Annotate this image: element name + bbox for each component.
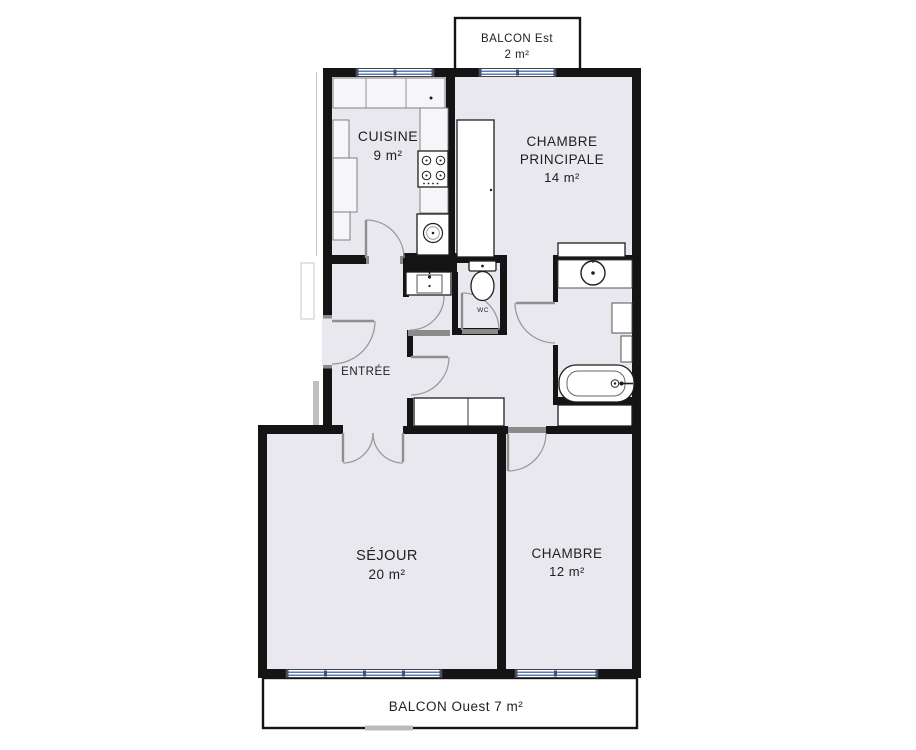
wc-label: WC [477, 307, 489, 314]
toilet-icon [469, 261, 496, 301]
entrance-opening [322, 315, 333, 369]
kitchen-area: 9 m² [374, 148, 403, 163]
exterior-guide-lines [301, 72, 319, 428]
master-bedroom-label-line2: PRINCIPALE [520, 152, 604, 167]
bedroom-window [515, 670, 598, 678]
floor-plan-page: BALCON Est 2 m² CUISINE 9 m² CHAMBRE PRI… [0, 0, 916, 750]
balcony-west-label: BALCON Ouest 7 m² [389, 699, 524, 714]
master-bedroom-window [479, 69, 556, 77]
floor-plan-drawing: BALCON Est 2 m² CUISINE 9 m² CHAMBRE PRI… [0, 0, 916, 750]
balcony-east-area: 2 m² [505, 49, 530, 61]
kitchen-label: CUISINE [358, 128, 418, 144]
hall-closet [414, 398, 504, 426]
living-room-label: SÉJOUR [356, 547, 418, 564]
bedroom-closet [558, 405, 632, 426]
kitchen-sink-icon [417, 214, 449, 255]
master-bedroom-label-line1: CHAMBRE [526, 134, 597, 149]
bedroom-label: CHAMBRE [531, 546, 602, 561]
entry-label: ENTRÉE [341, 365, 391, 378]
master-bedroom-closet [457, 120, 494, 257]
kitchen-window [356, 69, 434, 77]
balcony-east-label: BALCON Est [481, 33, 553, 45]
living-room-window [286, 670, 442, 678]
bathtub-icon [559, 365, 634, 402]
living-room-area: 20 m² [368, 567, 405, 582]
bedroom-area: 12 m² [549, 564, 585, 579]
stove-icon [418, 151, 448, 187]
master-bedroom-shelf [558, 243, 625, 257]
master-bedroom-area: 14 m² [544, 170, 580, 185]
